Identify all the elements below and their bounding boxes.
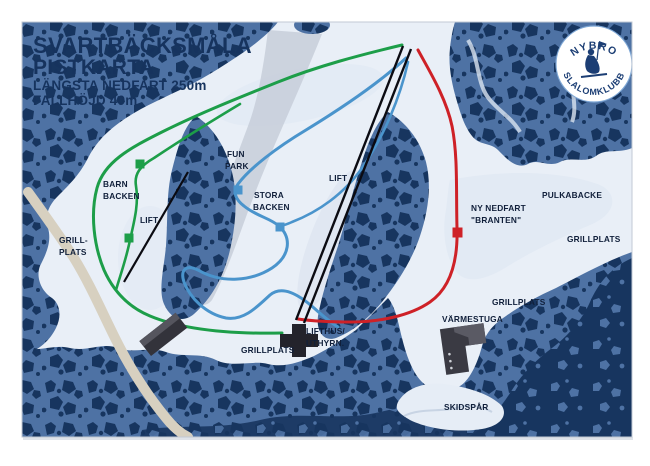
label-lifthus: UTHYRN. [306, 338, 344, 348]
ski-trail-map: BARN BACKEN LIFT GRILL- PLATS FUN PARK S… [0, 0, 650, 466]
map-stat-vertical-drop: FALLHÖJD 40m [33, 93, 137, 108]
piste-marker-blue [276, 223, 285, 232]
piste-marker-green [136, 160, 145, 169]
label-skidspar: SKIDSPÅR [444, 402, 488, 412]
piste-marker-red [453, 228, 463, 238]
pistkarta-page: BARN BACKEN LIFT GRILL- PLATS FUN PARK S… [0, 0, 650, 466]
label-lift-main: LIFT [329, 173, 347, 183]
label-grillplats-west: GRILL- [59, 235, 88, 245]
label-barn-backen: BARN [103, 179, 128, 189]
label-varmestuga: VÄRMESTUGA [442, 314, 503, 324]
label-ny-nedfart: "BRANTEN" [471, 215, 521, 225]
label-grillplats-west: PLATS [59, 247, 87, 257]
piste-marker-blue [234, 186, 243, 195]
label-lifthus: LIFTHUS/ [306, 326, 345, 336]
label-grillplats-ne: GRILLPLATS [567, 234, 621, 244]
label-lift-left: LIFT [140, 215, 158, 225]
map-stat-longest-run: LÄNGSTA NEDFART 250m [33, 78, 207, 93]
label-grillplats-s: GRILLPLATS [241, 345, 295, 355]
map-subtitle: PISTKARTA [33, 56, 154, 79]
map-title: SVARTBÄCKSMÅLA [33, 32, 252, 58]
label-fun-park: FUN [227, 149, 245, 159]
label-grillplats-e: GRILLPLATS [492, 297, 546, 307]
label-stora-backen: STORA [254, 190, 284, 200]
label-stora-backen: BACKEN [253, 202, 290, 212]
club-logo: NYBRO SLALOMKLUBB [556, 26, 632, 102]
label-fun-park: PARK [225, 161, 249, 171]
label-ny-nedfart: NY NEDFART [471, 203, 526, 213]
piste-marker-green [125, 234, 134, 243]
label-barn-backen: BACKEN [103, 191, 140, 201]
label-pulkabacke: PULKABACKE [542, 190, 602, 200]
